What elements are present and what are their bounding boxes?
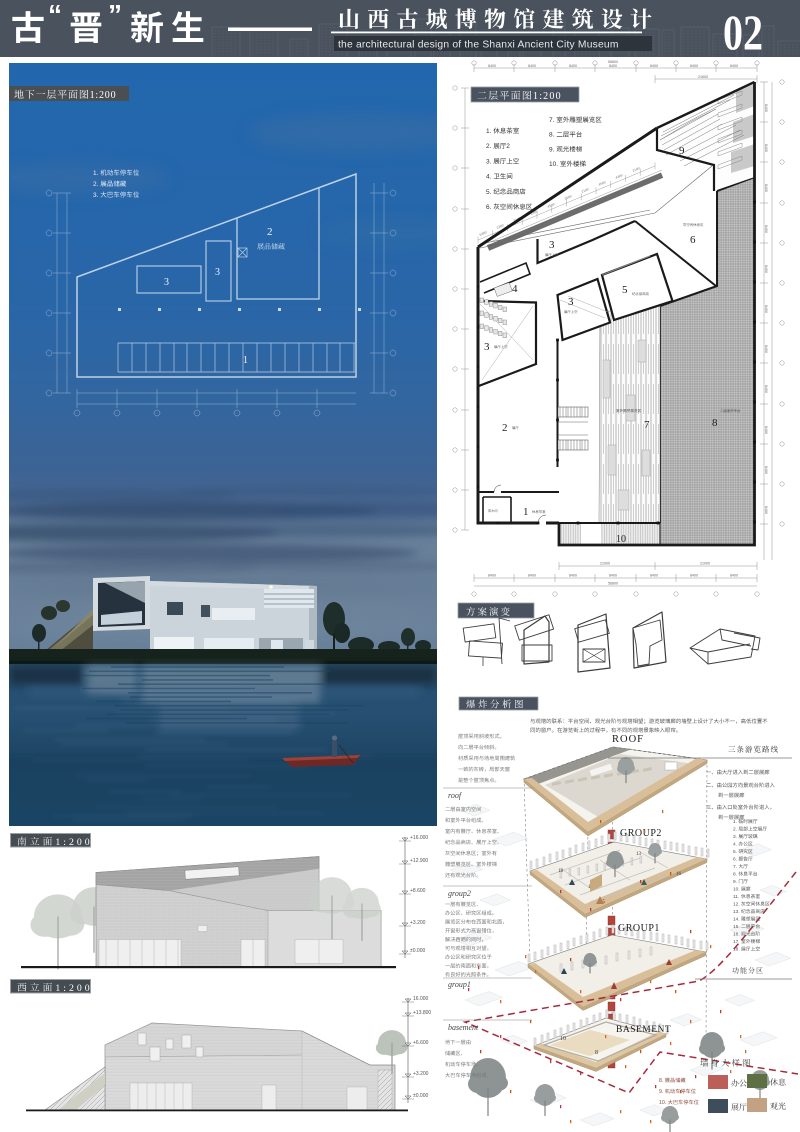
svg-text:8.: 8. [549, 132, 555, 139]
svg-text:3: 3 [568, 296, 574, 308]
svg-text:5: 5 [622, 284, 628, 296]
svg-text:8400: 8400 [764, 426, 768, 434]
svg-text:8: 8 [595, 1050, 598, 1056]
svg-text:9.: 9. [549, 146, 555, 153]
svg-text:+12.900: +12.900 [410, 858, 428, 864]
svg-text:1: 1 [523, 506, 529, 518]
svg-text:5.: 5. [486, 189, 492, 196]
svg-text:8400: 8400 [569, 64, 577, 68]
svg-text:8400: 8400 [609, 64, 617, 68]
svg-text:3.: 3. [733, 834, 737, 840]
svg-text:+3.200: +3.200 [413, 1071, 429, 1077]
svg-text:13.: 13. [733, 909, 740, 915]
svg-text:11.: 11. [733, 894, 739, 900]
svg-text:13: 13 [636, 852, 642, 857]
svg-text:group1: group1 [448, 980, 471, 989]
svg-text:+16.000: +16.000 [410, 835, 428, 841]
svg-text:+6.600: +6.600 [413, 1040, 429, 1046]
svg-text:4.: 4. [733, 842, 737, 848]
svg-text:9.: 9. [659, 1089, 663, 1095]
svg-text:8400: 8400 [650, 64, 658, 68]
svg-text:3.: 3. [486, 158, 492, 165]
svg-text:6300: 6300 [479, 230, 488, 237]
svg-text:basement: basement [448, 1023, 479, 1032]
svg-text:12.: 12. [733, 902, 740, 908]
svg-text:56800: 56800 [608, 60, 618, 64]
svg-text:14.: 14. [733, 917, 740, 923]
svg-text:3600: 3600 [564, 194, 573, 201]
svg-text:+3.200: +3.200 [410, 920, 426, 926]
svg-text:”: ” [108, 0, 122, 30]
svg-text:3: 3 [549, 239, 555, 251]
svg-text:4300: 4300 [615, 173, 624, 180]
svg-text:4500: 4500 [547, 202, 556, 209]
svg-text:10: 10 [560, 1036, 566, 1042]
svg-text:8400: 8400 [764, 144, 768, 152]
svg-text:10.: 10. [549, 161, 558, 168]
svg-text:6.: 6. [486, 204, 492, 211]
svg-text:8400: 8400 [764, 265, 768, 273]
svg-text:5.: 5. [733, 849, 737, 855]
svg-text:6.: 6. [733, 857, 737, 863]
svg-text:4.: 4. [486, 174, 492, 181]
svg-text:8400: 8400 [730, 64, 738, 68]
svg-text:2: 2 [267, 226, 273, 238]
svg-text:21000: 21000 [600, 562, 610, 566]
svg-text:8400: 8400 [528, 64, 536, 68]
svg-text:4500: 4500 [598, 180, 607, 187]
svg-text:2.: 2. [93, 181, 99, 188]
svg-text:9.: 9. [733, 879, 737, 885]
svg-text:21000: 21000 [700, 562, 710, 566]
svg-text:group2: group2 [448, 889, 471, 898]
svg-text:2.: 2. [733, 827, 737, 833]
svg-text:2.: 2. [486, 143, 492, 150]
svg-text:8400: 8400 [764, 305, 768, 313]
svg-text:16.: 16. [733, 932, 740, 938]
svg-text:10.: 10. [659, 1100, 666, 1106]
svg-text:BASEMENT: BASEMENT [616, 1025, 671, 1035]
svg-text:8: 8 [712, 417, 718, 429]
svg-text:7: 7 [644, 419, 650, 431]
svg-text:1:200: 1:200 [533, 91, 562, 102]
svg-text:8.: 8. [733, 872, 737, 878]
svg-text:16.000: 16.000 [413, 996, 429, 1002]
svg-text:±0.000: ±0.000 [410, 948, 425, 954]
svg-text:8400: 8400 [609, 574, 617, 578]
svg-text:8400: 8400 [764, 385, 768, 393]
svg-text:8400: 8400 [764, 345, 768, 353]
svg-text:8400: 8400 [690, 574, 698, 578]
svg-text:+8.600: +8.600 [410, 888, 426, 894]
svg-text:1.: 1. [733, 819, 737, 825]
svg-text:8400: 8400 [488, 574, 496, 578]
svg-text:8400: 8400 [650, 574, 658, 578]
svg-text:8400: 8400 [764, 184, 768, 192]
svg-text:16: 16 [676, 872, 682, 877]
svg-text:3: 3 [215, 267, 220, 278]
svg-text:4: 4 [512, 283, 518, 295]
svg-text:56800: 56800 [608, 582, 618, 586]
svg-text:6: 6 [690, 234, 696, 246]
svg-text:02: 02 [723, 5, 763, 57]
svg-text:8400: 8400 [569, 574, 577, 578]
svg-text:1:200: 1:200 [90, 90, 117, 101]
svg-text:10.: 10. [733, 887, 740, 893]
svg-text:±0.000: ±0.000 [413, 1093, 428, 1099]
svg-text:roof: roof [448, 791, 463, 800]
svg-text:10: 10 [616, 534, 626, 545]
svg-text:2100: 2100 [632, 166, 641, 173]
svg-text:9: 9 [679, 145, 685, 157]
svg-text:8400: 8400 [764, 466, 768, 474]
svg-text:8400: 8400 [690, 64, 698, 68]
svg-text:+13.800: +13.800 [413, 1010, 431, 1016]
svg-text:8400: 8400 [764, 506, 768, 514]
svg-text:the architectural design of th: the architectural design of the Shanxi A… [338, 40, 619, 51]
svg-text:GROUP1: GROUP1 [618, 923, 660, 934]
svg-text:3: 3 [164, 277, 169, 288]
svg-text:1:200: 1:200 [55, 983, 92, 994]
svg-text:3.: 3. [93, 192, 99, 199]
svg-text:2: 2 [506, 143, 510, 150]
svg-text:18.: 18. [733, 947, 740, 953]
svg-text:8.: 8. [659, 1078, 663, 1084]
svg-text:8400: 8400 [528, 574, 536, 578]
svg-text:GROUP2: GROUP2 [620, 828, 662, 839]
svg-text:8400: 8400 [488, 64, 496, 68]
svg-text:7.: 7. [733, 864, 737, 870]
svg-text:1.: 1. [93, 170, 99, 177]
svg-text:1: 1 [243, 355, 248, 366]
svg-text:7.: 7. [549, 117, 555, 124]
svg-text:“: “ [48, 0, 62, 30]
svg-text:8400: 8400 [764, 225, 768, 233]
svg-text:18: 18 [558, 869, 564, 874]
svg-text:15.: 15. [733, 924, 740, 930]
svg-text:8400: 8400 [764, 104, 768, 112]
svg-text:21600: 21600 [698, 75, 708, 79]
svg-text:2100: 2100 [581, 187, 590, 194]
svg-text:1.: 1. [486, 128, 492, 135]
svg-text:ROOF: ROOF [612, 734, 644, 745]
svg-text:17.: 17. [733, 939, 740, 945]
svg-text:3: 3 [484, 341, 490, 353]
svg-text:2: 2 [502, 422, 508, 434]
svg-text:8400: 8400 [730, 574, 738, 578]
